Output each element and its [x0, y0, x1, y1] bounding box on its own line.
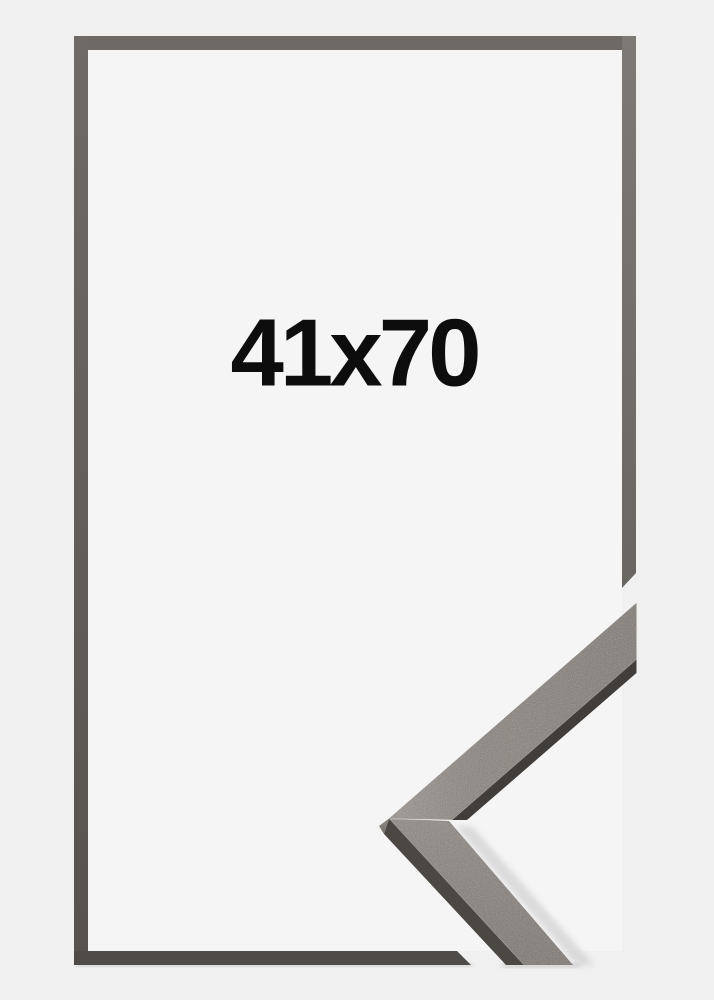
frame-bottom-border [74, 951, 471, 965]
frame-right-border [622, 36, 636, 588]
product-image: 41x70 [0, 0, 714, 1000]
frame-inner-area [88, 50, 622, 951]
frame-graphic [0, 0, 714, 1000]
frame-top-border [74, 36, 636, 50]
size-label: 41x70 [231, 299, 478, 409]
frame-left-border [74, 36, 88, 965]
